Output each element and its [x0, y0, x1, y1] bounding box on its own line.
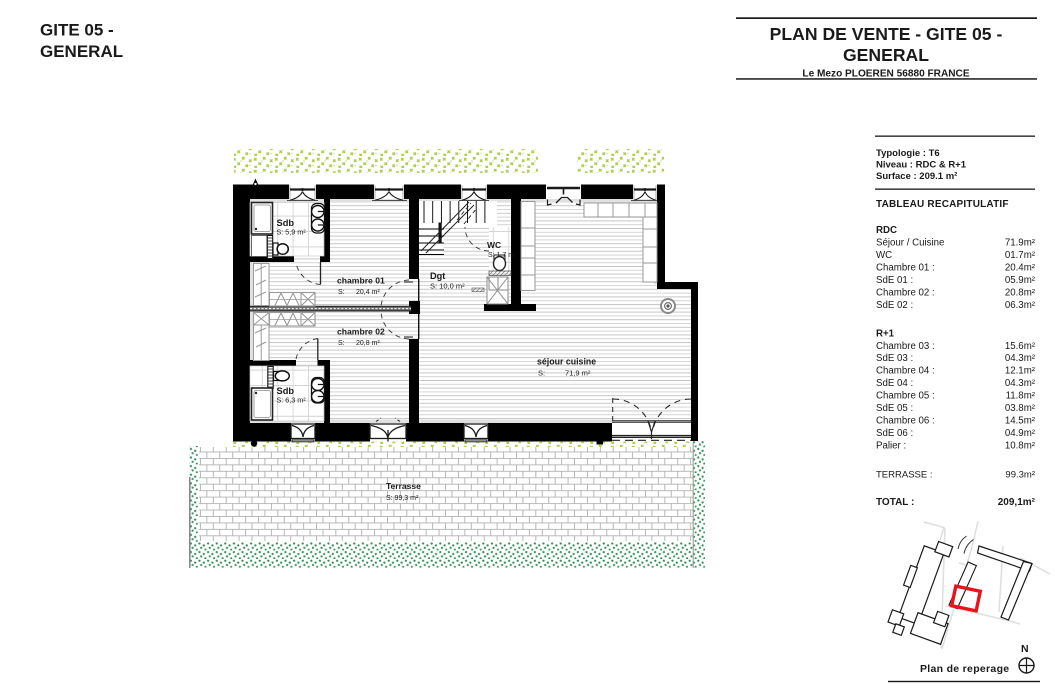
svg-text:S:: S:: [338, 289, 345, 296]
svg-text:S: 6,3 m²: S: 6,3 m²: [277, 396, 307, 405]
svg-text:Niveau : RDC & R+1: Niveau : RDC & R+1: [876, 160, 967, 171]
svg-text:R+1: R+1: [876, 329, 895, 340]
svg-text:S:: S:: [538, 369, 545, 378]
svg-text:S: 99,3 m²: S: 99,3 m²: [386, 495, 419, 502]
svg-text:WC: WC: [876, 250, 892, 261]
svg-text:Sdb: Sdb: [277, 218, 295, 228]
svg-text:71.9m²: 71.9m²: [1005, 238, 1036, 249]
svg-text:01.7m²: 01.7m²: [1005, 250, 1036, 261]
svg-text:10.8m²: 10.8m²: [1005, 441, 1036, 452]
svg-text:Sdb: Sdb: [277, 386, 295, 396]
svg-text:GENERAL: GENERAL: [40, 42, 123, 61]
svg-text:N: N: [1021, 643, 1029, 655]
svg-text:Palier :: Palier :: [876, 441, 906, 452]
svg-text:Typologie : T6: Typologie : T6: [876, 148, 940, 159]
svg-text:Chambre 03 :: Chambre 03 :: [876, 341, 935, 352]
svg-text:SdE 05 :: SdE 05 :: [876, 403, 913, 414]
svg-text:71,9 m²: 71,9 m²: [565, 369, 591, 378]
svg-text:06.3m²: 06.3m²: [1005, 300, 1036, 311]
svg-text:WC: WC: [487, 240, 501, 250]
svg-text:Surface : 209.1 m²: Surface : 209.1 m²: [876, 171, 957, 182]
svg-text:Plan de reperage: Plan de reperage: [920, 663, 1009, 675]
svg-text:20,4 m²: 20,4 m²: [356, 289, 380, 296]
svg-text:15.6m²: 15.6m²: [1005, 341, 1036, 352]
svg-text:SdE 01 :: SdE 01 :: [876, 275, 913, 286]
svg-text:04.9m²: 04.9m²: [1005, 428, 1036, 439]
svg-text:séjour cuisine: séjour cuisine: [537, 357, 596, 367]
svg-text:TABLEAU RECAPITULATIF: TABLEAU RECAPITULATIF: [876, 199, 1009, 210]
svg-text:04.3m²: 04.3m²: [1005, 378, 1036, 389]
svg-text:Le Mezo PLOEREN 56880 FRANCE: Le Mezo PLOEREN 56880 FRANCE: [802, 69, 969, 80]
svg-text:14.5m²: 14.5m²: [1005, 416, 1036, 427]
svg-text:Chambre 02 :: Chambre 02 :: [876, 288, 935, 299]
svg-text:GENERAL: GENERAL: [843, 45, 929, 65]
svg-text:20,8 m²: 20,8 m²: [356, 340, 380, 347]
svg-text:Séjour / Cuisine: Séjour / Cuisine: [876, 238, 944, 249]
svg-text:Chambre 05 :: Chambre 05 :: [876, 391, 935, 402]
svg-text:S: 10,0 m²: S: 10,0 m²: [430, 282, 465, 291]
svg-text:05.9m²: 05.9m²: [1005, 275, 1036, 286]
svg-text:SdE 03 :: SdE 03 :: [876, 353, 913, 364]
svg-text:Chambre 01 :: Chambre 01 :: [876, 263, 935, 274]
svg-text:TERRASSE :: TERRASSE :: [876, 470, 933, 481]
svg-text:12.1m²: 12.1m²: [1005, 366, 1036, 377]
svg-text:RDC: RDC: [876, 225, 897, 236]
svg-text:03.8m²: 03.8m²: [1005, 403, 1036, 414]
svg-text:Chambre 06 :: Chambre 06 :: [876, 416, 935, 427]
svg-text:PLAN DE VENTE - GITE 05 -: PLAN DE VENTE - GITE 05 -: [770, 24, 1003, 44]
svg-text:GITE 05 -: GITE 05 -: [40, 21, 114, 40]
svg-text:209,1m²: 209,1m²: [998, 497, 1036, 508]
svg-text:11.8m²: 11.8m²: [1006, 391, 1036, 402]
svg-text:Dgt: Dgt: [430, 271, 445, 281]
svg-text:S: 5,9 m²: S: 5,9 m²: [277, 228, 307, 237]
svg-text:20.8m²: 20.8m²: [1005, 288, 1036, 299]
svg-text:99.3m²: 99.3m²: [1005, 470, 1035, 481]
svg-text:chambre 01: chambre 01: [337, 276, 385, 286]
svg-text:Chambre 04 :: Chambre 04 :: [876, 366, 935, 377]
svg-text:Terrasse: Terrasse: [386, 481, 421, 491]
svg-text:TOTAL :: TOTAL :: [876, 497, 914, 508]
svg-text:SdE 02 :: SdE 02 :: [876, 300, 913, 311]
svg-text:20.4m²: 20.4m²: [1005, 263, 1036, 274]
svg-text:chambre 02: chambre 02: [337, 327, 385, 337]
svg-text:SdE 06 :: SdE 06 :: [876, 428, 913, 439]
svg-text:04.3m²: 04.3m²: [1005, 353, 1036, 364]
svg-text:SdE 04 :: SdE 04 :: [876, 378, 913, 389]
svg-text:S:: S:: [338, 340, 345, 347]
svg-text:S: 1,7 m: S: 1,7 m: [488, 252, 514, 259]
